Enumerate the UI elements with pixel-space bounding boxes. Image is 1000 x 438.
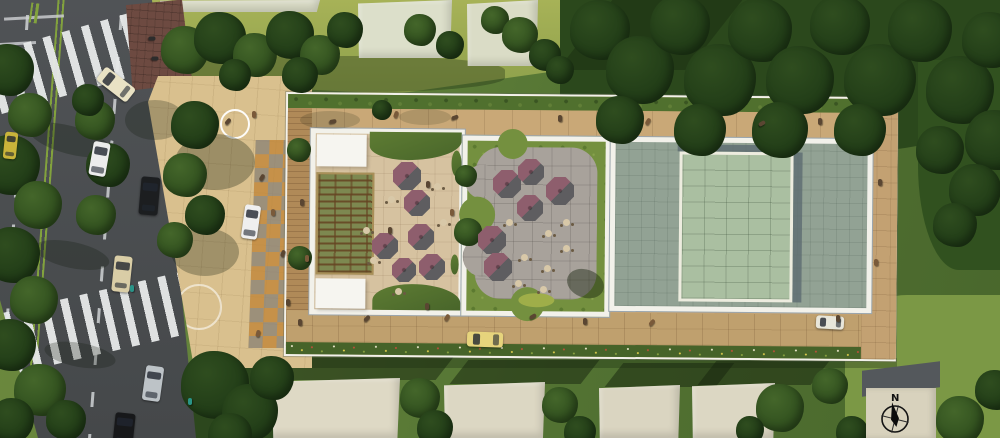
people-layer: [0, 0, 1000, 438]
pedestrian: [645, 117, 652, 125]
pedestrian: [224, 118, 232, 126]
compass-north-label: N: [891, 393, 899, 404]
pedestrian: [583, 318, 587, 325]
pedestrian: [363, 315, 371, 323]
pedestrian: [149, 37, 156, 41]
compass-rose: N: [874, 390, 918, 438]
pedestrian: [298, 319, 302, 326]
site-plan-render: N: [0, 0, 1000, 438]
pedestrian: [252, 111, 256, 118]
pedestrian: [255, 330, 261, 338]
pedestrian: [450, 209, 454, 216]
pedestrian: [286, 299, 290, 306]
pedestrian: [259, 173, 266, 181]
pedestrian: [878, 179, 882, 186]
pedestrian: [305, 255, 309, 262]
pedestrian: [758, 120, 766, 127]
pedestrian: [836, 315, 840, 322]
pedestrian: [444, 313, 451, 321]
pedestrian: [451, 114, 459, 120]
pedestrian: [529, 313, 537, 320]
pedestrian: [130, 285, 134, 292]
pedestrian: [648, 319, 656, 327]
pedestrian: [388, 227, 392, 234]
pedestrian: [300, 199, 304, 206]
pedestrian: [152, 57, 159, 61]
pedestrian: [280, 250, 286, 258]
pedestrian: [874, 259, 878, 266]
pedestrian: [393, 111, 399, 119]
pedestrian: [426, 181, 430, 188]
pedestrian: [188, 398, 192, 405]
pedestrian: [425, 303, 429, 310]
pedestrian: [329, 119, 337, 124]
pedestrian: [271, 209, 275, 216]
pedestrian: [558, 115, 562, 122]
pedestrian: [818, 118, 822, 125]
